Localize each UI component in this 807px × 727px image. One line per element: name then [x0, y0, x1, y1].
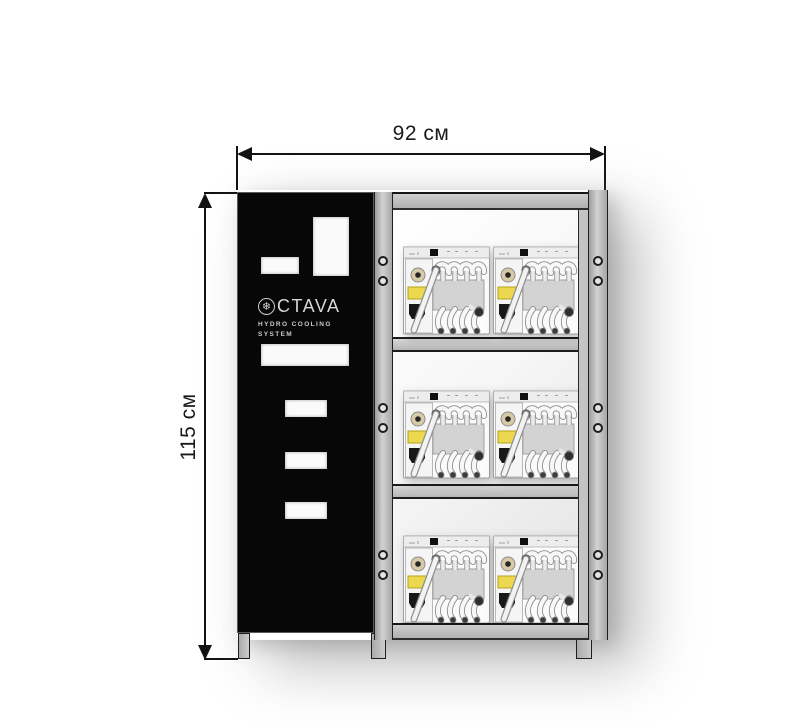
- frame-bolt: [593, 423, 603, 433]
- width-arrow-left: [237, 147, 252, 161]
- frame-bolt: [378, 276, 388, 286]
- width-extension-left: [236, 146, 238, 190]
- brand-subtitle-line1: HYDRO COOLING: [258, 320, 370, 330]
- diagram-stage: 92 см 115 см ❄CTAVA HYDRO: [0, 0, 807, 727]
- panel-cutout-vent-1: [285, 400, 327, 417]
- height-extension-bottom: [204, 658, 238, 660]
- height-arrow-up: [198, 193, 212, 208]
- width-arrow-right: [590, 147, 605, 161]
- height-dimension-line: [204, 204, 206, 648]
- brand-logo: ❄CTAVA HYDRO COOLING SYSTEM: [258, 296, 370, 341]
- panel-cutout-vent-3: [285, 502, 327, 519]
- frame-bolt: [593, 570, 603, 580]
- frame-bolt: [378, 256, 388, 266]
- frame-bolt: [378, 570, 388, 580]
- panel-cutout-wide: [261, 344, 349, 366]
- panel-cutout-small: [261, 257, 299, 274]
- width-dimension-label: 92 см: [237, 122, 605, 146]
- equipment-rack: [374, 190, 608, 640]
- brand-logo-text: CTAVA: [277, 296, 341, 317]
- frame-bolt: [593, 276, 603, 286]
- cabinet: ❄CTAVA HYDRO COOLING SYSTEM: [237, 190, 608, 640]
- width-dimension-line: [248, 153, 594, 155]
- height-extension-top: [204, 192, 238, 194]
- width-extension-right: [604, 146, 606, 190]
- frame-bolt: [593, 403, 603, 413]
- frame-bolt: [378, 423, 388, 433]
- front-panel: ❄CTAVA HYDRO COOLING SYSTEM: [237, 192, 374, 633]
- cabinet-leg-left: [238, 633, 250, 659]
- frame-bolt: [593, 256, 603, 266]
- frame-bolt: [378, 550, 388, 560]
- frame-bolt: [378, 403, 388, 413]
- bolt-layer: [374, 190, 608, 640]
- panel-cutout-tall: [313, 217, 349, 276]
- panel-cutout-vent-2: [285, 452, 327, 469]
- frame-bolt: [593, 550, 603, 560]
- brand-subtitle-line2: SYSTEM: [258, 330, 370, 340]
- height-dimension-label: 115 см: [177, 385, 201, 469]
- snowflake-icon: ❄: [258, 298, 275, 315]
